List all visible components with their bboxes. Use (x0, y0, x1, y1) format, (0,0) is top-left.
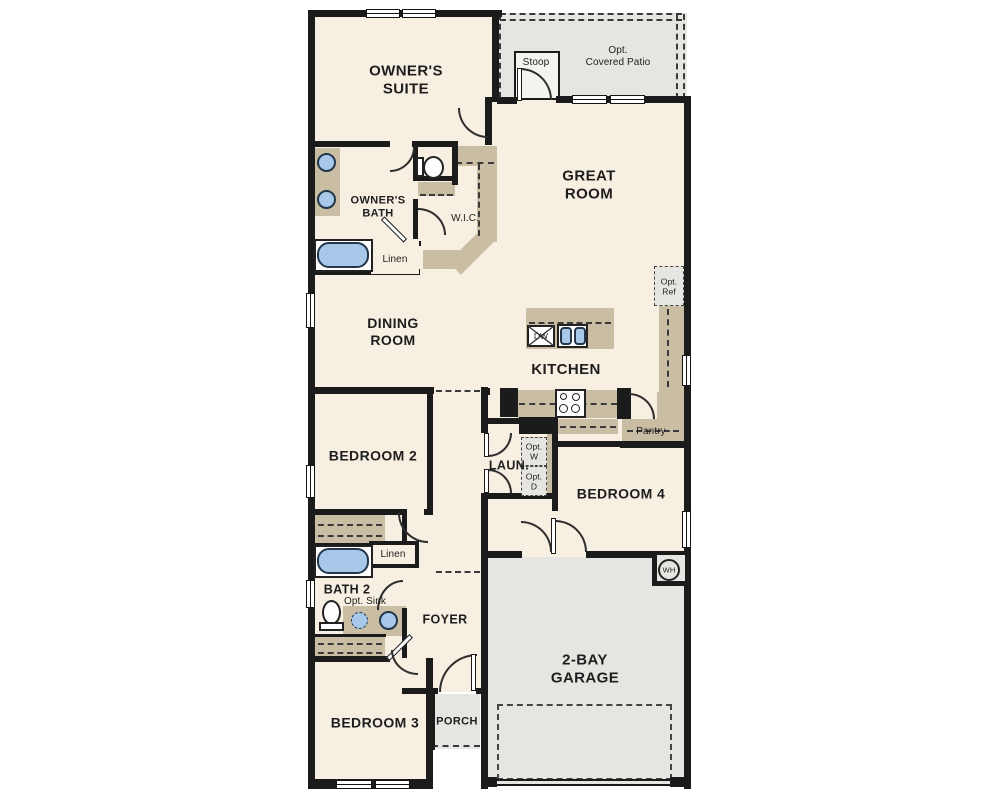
window (336, 780, 372, 789)
kitchen-counter-right (659, 302, 684, 396)
door-leaf (484, 433, 489, 457)
label-opt-sink: Opt. Sink (344, 596, 386, 608)
bathtub (317, 548, 369, 574)
wic-shelf (423, 250, 465, 269)
wall (430, 694, 435, 750)
window (375, 780, 410, 789)
garage-door-line (497, 784, 670, 786)
bathtub (317, 242, 369, 268)
room-label-bedroom2: BEDROOM 2 (329, 447, 417, 464)
wall (500, 388, 518, 417)
wall (427, 387, 433, 515)
room-label-kitchen: KITCHEN (531, 361, 600, 379)
shelf-dashed-line (560, 426, 616, 428)
vanity-sink (317, 190, 336, 209)
patio-dashed-edge (683, 14, 685, 99)
window (402, 9, 436, 18)
patio-dashed-edge (499, 14, 501, 98)
wall (315, 634, 386, 637)
kitchen-sink (560, 327, 572, 345)
room-label-garage: 2-BAY GARAGE (551, 652, 619, 689)
wall (497, 97, 517, 104)
patio-dashed-edge (500, 19, 682, 21)
label-water-heater: WH (663, 565, 676, 574)
wall (492, 10, 499, 102)
window (366, 9, 400, 18)
shelf-dashed-line (420, 194, 453, 196)
floor-plan: OWNER'S SUITE Stoop Opt. Covered Patio G… (0, 0, 1000, 800)
wall (308, 141, 390, 147)
door-leaf (517, 68, 522, 101)
wall (481, 493, 488, 557)
room-label-bedroom3: BEDROOM 3 (331, 714, 419, 731)
burner (572, 393, 580, 401)
window (682, 511, 691, 548)
floor-hall-foyer (433, 389, 487, 692)
label-dishwasher: DW (534, 331, 548, 341)
room-label-wic: W.I.C. (451, 213, 479, 225)
wall (308, 387, 434, 394)
label-opt-ref: Opt. Ref (661, 277, 677, 298)
wall (481, 418, 523, 424)
vanity-sink (379, 611, 398, 630)
opening-dashed (436, 571, 480, 573)
garage-door-line (497, 779, 670, 781)
window (306, 293, 315, 328)
garage-door-dashed (497, 704, 672, 780)
room-label-stoop: Stoop (523, 57, 550, 69)
wall (481, 388, 490, 395)
wall (308, 656, 390, 662)
toilet-bowl (423, 156, 444, 179)
room-label-laundry: LAUN. (489, 458, 529, 473)
room-label-owners-suite: OWNER'S SUITE (369, 63, 443, 100)
label-opt-washer: Opt. W (526, 442, 542, 463)
wall (308, 509, 403, 515)
room-label-owners-bath: OWNER'S BATH (351, 195, 406, 222)
vanity-sink (317, 153, 336, 172)
room-label-dining-room: DINING ROOM (367, 315, 418, 349)
window (306, 465, 315, 498)
wall (483, 777, 497, 787)
wall (481, 551, 488, 789)
burner (571, 404, 580, 413)
cooktop (555, 389, 586, 418)
wic-dashed-line (478, 164, 480, 236)
room-label-porch: PORCH (436, 715, 478, 728)
window (306, 580, 315, 608)
wall (620, 443, 684, 448)
label-pantry: Pantry (636, 426, 666, 438)
closet-dashed-line (318, 643, 382, 645)
wall (308, 10, 315, 789)
patio-dashed-edge (500, 13, 682, 15)
closet-dashed-line (318, 535, 382, 537)
closet-dashed-line (318, 524, 382, 526)
burner (559, 404, 568, 413)
kitchen-sink (574, 327, 586, 345)
label-linen-hall: Linen (381, 549, 406, 561)
room-label-covered-patio: Opt. Covered Patio (586, 45, 651, 69)
patio-dashed-edge (676, 14, 678, 99)
closet-dashed-line (318, 652, 382, 654)
room-label-bedroom4: BEDROOM 4 (577, 485, 665, 502)
label-linen-owners: Linen (383, 254, 408, 266)
wall (476, 688, 483, 694)
room-label-great-room: GREAT ROOM (562, 168, 615, 205)
window (610, 95, 645, 104)
burner (560, 393, 567, 400)
opt-vanity-sink (351, 612, 368, 629)
toilet-tank (319, 622, 344, 631)
pantry-shelf (657, 392, 684, 422)
room-label-foyer: FOYER (422, 612, 467, 627)
opening-dashed (436, 390, 480, 392)
label-opt-dryer: Opt. D (526, 472, 542, 493)
wall (670, 777, 687, 787)
window (682, 355, 691, 386)
porch-dashed-edge (432, 745, 480, 747)
window (572, 95, 607, 104)
door-leaf (471, 654, 476, 691)
counter-dashed-line (667, 309, 669, 387)
wic-dashed-line (456, 162, 494, 164)
